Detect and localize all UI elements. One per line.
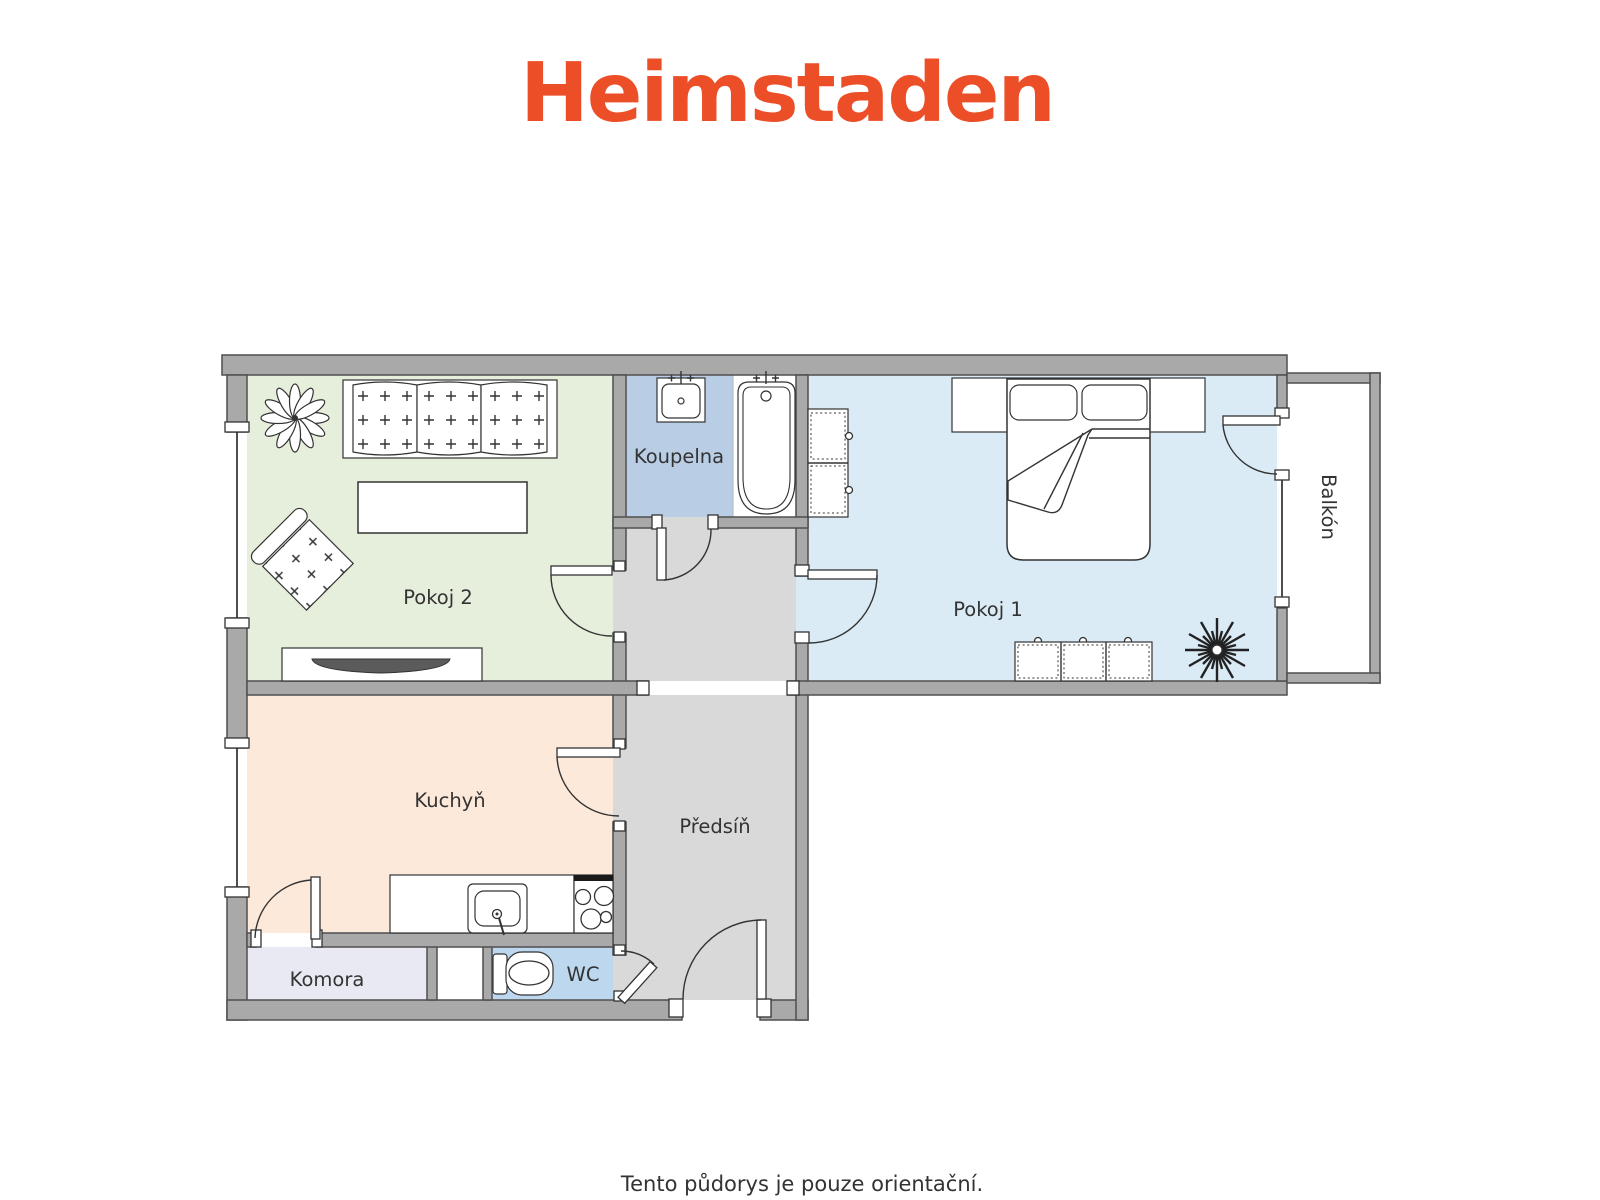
window-cap <box>1275 470 1289 480</box>
plant-center <box>292 415 298 421</box>
wall-left-seg <box>227 618 247 748</box>
wall-balkon-top <box>1287 373 1380 383</box>
wall-kuchyn-bottom-seg <box>316 933 613 947</box>
floorplan-canvas: Heimstaden <box>0 0 1600 1200</box>
wall-strip-left-seg <box>613 375 626 570</box>
double-bed-icon <box>1007 379 1150 560</box>
wall-divider-seg <box>788 681 1287 695</box>
wall-divider-seg <box>247 681 648 695</box>
room-label-koupelna: Koupelna <box>634 445 724 468</box>
window-cap <box>225 618 249 628</box>
burner <box>595 887 614 906</box>
sofa-icon <box>343 380 557 458</box>
room-label-kuchyn: Kuchyň <box>414 789 485 812</box>
jamb-cap <box>757 999 771 1017</box>
toilet-icon <box>493 952 553 995</box>
coffee-table-icon <box>358 482 527 533</box>
opening-kuchyn <box>613 748 626 822</box>
door-leaf <box>757 920 766 999</box>
room-label-predsin: Předsíň <box>679 815 750 838</box>
wall-balkon-bottom <box>1287 673 1380 683</box>
door-leaf <box>557 748 620 757</box>
window-cap <box>225 738 249 748</box>
wall-pokoj1-right-seg <box>1277 375 1287 410</box>
room-label-pokoj2: Pokoj 2 <box>403 586 473 609</box>
door-leaf <box>657 528 666 580</box>
jamb-cap <box>795 632 809 643</box>
opening-komora <box>256 933 316 947</box>
room-label-pokoj1: Pokoj 1 <box>953 598 1023 621</box>
bathtub-icon <box>738 371 795 514</box>
pillow <box>1010 385 1077 420</box>
opening-pokoj2 <box>613 570 626 633</box>
brand-logo: Heimstaden <box>520 46 1054 141</box>
kitchen-sink-icon <box>468 884 527 935</box>
door-leaf <box>551 566 612 575</box>
furniture-kuchyn <box>390 875 614 935</box>
wall-strip-left-seg <box>613 822 626 955</box>
burner <box>576 890 591 905</box>
wall-balkon-right <box>1370 373 1380 683</box>
wall-koupelna-bottom-seg <box>613 517 658 528</box>
room-label-komora: Komora <box>290 968 365 991</box>
opening-passage <box>648 681 788 695</box>
plant-center <box>1212 645 1222 655</box>
washbasin-icon <box>657 371 705 422</box>
jamb-cap <box>637 681 649 695</box>
jamb-cap <box>652 515 662 529</box>
jamb-cap <box>614 632 625 642</box>
wall-strip-right-seg <box>796 375 808 576</box>
stove-icon <box>574 875 614 933</box>
tv-stand-icon <box>282 648 482 681</box>
opening-pokoj1 <box>796 576 808 633</box>
opening-koupelna <box>658 517 712 528</box>
jamb-cap <box>795 565 809 576</box>
burner <box>581 909 601 929</box>
wall-pokoj1-right-seg <box>1277 608 1287 681</box>
room-label-balkon: Balkón <box>1317 474 1340 540</box>
pillow <box>1082 385 1147 420</box>
floorplan-page: Heimstaden <box>0 0 1600 1200</box>
window-cap <box>225 887 249 897</box>
jamb-cap <box>787 681 799 695</box>
burner <box>601 912 612 923</box>
jamb-cap <box>708 515 718 529</box>
wall-koupelna-bottom-seg <box>712 517 808 528</box>
dresser-icon <box>1015 638 1152 682</box>
room-label-wc: WC <box>567 963 600 986</box>
door-leaf <box>1223 416 1280 425</box>
window-cap <box>225 422 249 432</box>
jamb-cap <box>614 561 625 571</box>
door-leaf <box>311 877 320 939</box>
disclaimer-text: Tento půdorys je pouze orientační. <box>620 1172 983 1196</box>
handle <box>846 433 853 440</box>
handle <box>846 487 853 494</box>
floor-closet-niche <box>437 947 483 1000</box>
wall-top <box>222 355 1287 375</box>
floor-hall <box>626 528 796 681</box>
floor-predsin <box>626 695 796 1000</box>
door-leaf <box>808 570 877 579</box>
wardrobe-icon <box>808 409 853 517</box>
opening-entrance <box>682 1000 760 1020</box>
window-cap <box>1275 597 1289 607</box>
jamb-cap <box>614 945 625 955</box>
jamb-cap <box>669 999 683 1017</box>
wall-bottom-seg <box>227 1000 682 1020</box>
jamb-cap <box>614 821 625 831</box>
